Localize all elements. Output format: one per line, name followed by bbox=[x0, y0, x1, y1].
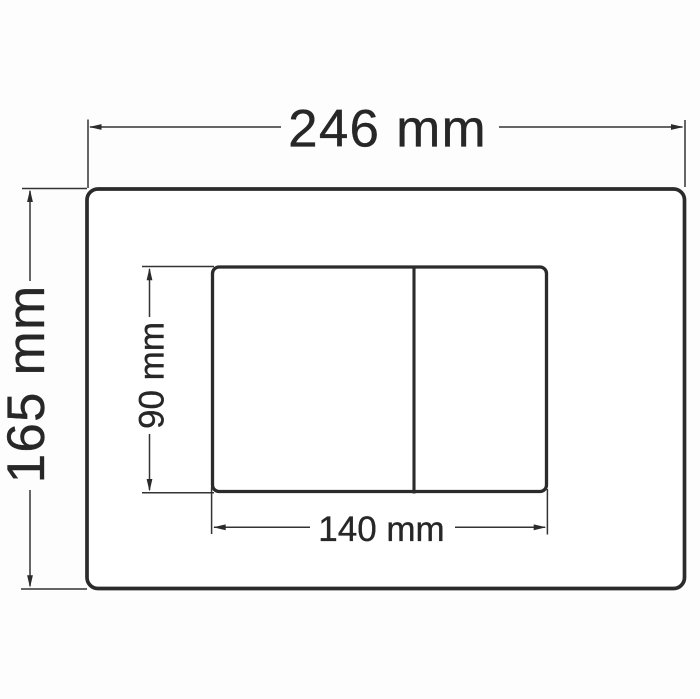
svg-text:165 mm: 165 mm bbox=[0, 285, 56, 484]
svg-text:246 mm: 246 mm bbox=[288, 100, 487, 159]
svg-text:140 mm: 140 mm bbox=[318, 510, 444, 549]
svg-text:90 mm: 90 mm bbox=[133, 322, 172, 429]
